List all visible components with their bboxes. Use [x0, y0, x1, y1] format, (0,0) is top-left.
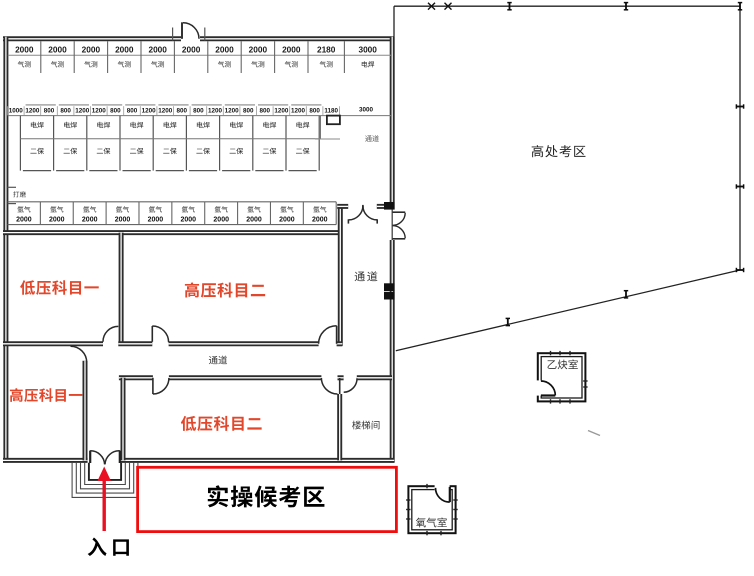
svg-text:2000: 2000 [249, 45, 268, 55]
svg-text:2000: 2000 [282, 45, 301, 55]
svg-text:1200: 1200 [158, 107, 173, 114]
svg-text:2000: 2000 [16, 216, 32, 223]
svg-text:2000: 2000 [82, 45, 101, 55]
svg-text:2000: 2000 [279, 216, 295, 223]
svg-text:1200: 1200 [274, 107, 289, 114]
svg-text:800: 800 [309, 107, 320, 114]
svg-text:800: 800 [44, 107, 55, 114]
svg-text:2000: 2000 [181, 216, 197, 223]
svg-text:1200: 1200 [225, 107, 240, 114]
svg-text:2000: 2000 [148, 45, 167, 55]
svg-text:2180: 2180 [317, 45, 336, 55]
svg-text:2000: 2000 [15, 45, 34, 55]
svg-text:2000: 2000 [49, 216, 65, 223]
svg-text:800: 800 [243, 107, 254, 114]
svg-text:2000: 2000 [182, 45, 201, 55]
svg-text:800: 800 [60, 107, 71, 114]
svg-text:1200: 1200 [142, 107, 157, 114]
svg-text:2000: 2000 [213, 216, 229, 223]
svg-text:1000: 1000 [9, 107, 24, 114]
svg-text:800: 800 [193, 107, 204, 114]
svg-text:1200: 1200 [25, 107, 40, 114]
svg-text:2000: 2000 [246, 216, 262, 223]
svg-text:1200: 1200 [92, 107, 107, 114]
svg-text:800: 800 [260, 107, 271, 114]
svg-text:1180: 1180 [324, 107, 338, 114]
svg-text:2000: 2000 [115, 45, 134, 55]
svg-text:2000: 2000 [82, 216, 98, 223]
svg-text:2000: 2000 [48, 45, 67, 55]
svg-text:1200: 1200 [208, 107, 223, 114]
svg-text:2000: 2000 [215, 45, 234, 55]
svg-text:1200: 1200 [291, 107, 306, 114]
svg-text:800: 800 [127, 107, 138, 114]
svg-text:2000: 2000 [148, 216, 164, 223]
svg-text:1200: 1200 [75, 107, 90, 114]
svg-text:800: 800 [110, 107, 121, 114]
svg-text:3000: 3000 [359, 107, 374, 114]
svg-text:2000: 2000 [312, 216, 328, 223]
svg-text:800: 800 [177, 107, 188, 114]
svg-text:2000: 2000 [115, 216, 131, 223]
svg-text:3000: 3000 [358, 45, 377, 55]
